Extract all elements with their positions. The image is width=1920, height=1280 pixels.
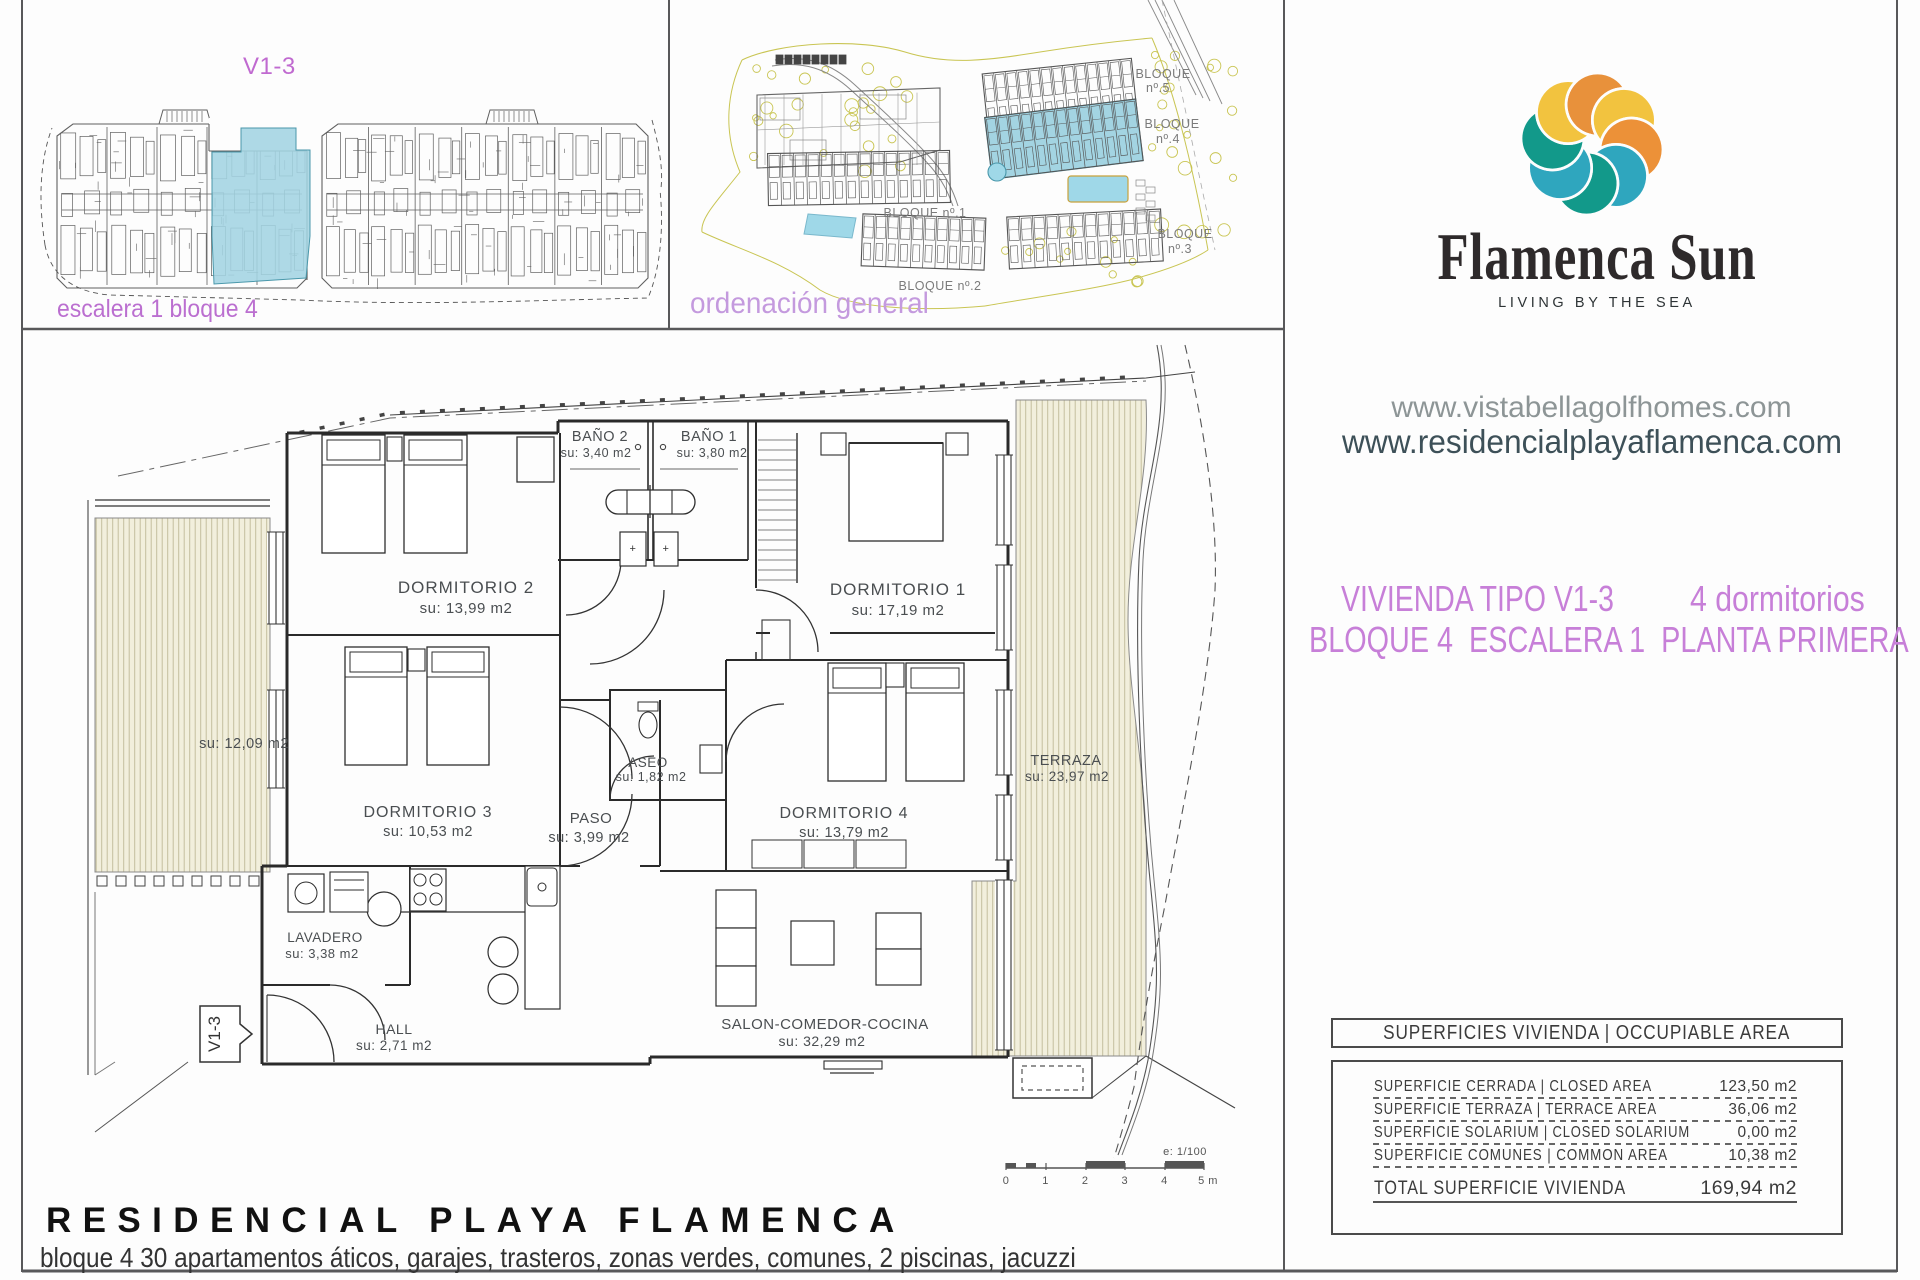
svg-text:DORMITORIO 4: DORMITORIO 4 <box>779 805 908 822</box>
svg-text:su: 10,53 m2: su: 10,53 m2 <box>383 824 473 840</box>
svg-text:BLOQUE nº.1: BLOQUE nº.1 <box>883 206 966 220</box>
svg-text:nº.5: nº.5 <box>1146 81 1170 95</box>
svg-text:DORMITORIO 3: DORMITORIO 3 <box>363 804 492 821</box>
svg-text:su: 3,80 m2: su: 3,80 m2 <box>677 446 748 460</box>
svg-text:su: 13,99 m2: su: 13,99 m2 <box>420 600 513 617</box>
svg-text:1: 1 <box>1042 1175 1049 1187</box>
svg-text:DORMITORIO 1: DORMITORIO 1 <box>830 580 966 599</box>
svg-text:HALL: HALL <box>375 1021 412 1037</box>
svg-text:PASO: PASO <box>570 810 613 827</box>
svg-text:+: + <box>630 543 637 555</box>
svg-text:su: 3,99 m2: su: 3,99 m2 <box>548 830 629 846</box>
svg-text:SALON-COMEDOR-COCINA: SALON-COMEDOR-COCINA <box>721 1016 929 1033</box>
svg-text:BLOQUE: BLOQUE <box>1144 117 1199 131</box>
svg-text:5 m: 5 m <box>1198 1175 1218 1187</box>
svg-text:su: 12,09 m2: su: 12,09 m2 <box>199 736 289 752</box>
svg-text:4: 4 <box>1161 1175 1168 1187</box>
svg-text:DORMITORIO 2: DORMITORIO 2 <box>398 578 534 597</box>
svg-text:su: 13,79 m2: su: 13,79 m2 <box>799 825 889 841</box>
svg-text:su: 23,97 m2: su: 23,97 m2 <box>1025 769 1109 784</box>
svg-text:ASEO: ASEO <box>628 755 668 770</box>
svg-text:LAVADERO: LAVADERO <box>287 930 363 945</box>
svg-text:su: 32,29 m2: su: 32,29 m2 <box>779 1033 866 1049</box>
svg-text:TERRAZA: TERRAZA <box>1030 753 1101 769</box>
svg-text:su: 1,82 m2: su: 1,82 m2 <box>616 770 687 784</box>
svg-text:+: + <box>663 543 670 555</box>
svg-text:su: 3,40 m2: su: 3,40 m2 <box>561 446 632 460</box>
svg-text:BLOQUE: BLOQUE <box>1135 67 1190 81</box>
svg-text:V1-3: V1-3 <box>205 1016 224 1052</box>
svg-text:BAÑO 2: BAÑO 2 <box>572 428 628 445</box>
svg-text:su: 3,38 m2: su: 3,38 m2 <box>285 946 358 961</box>
svg-text:0: 0 <box>1003 1175 1010 1187</box>
svg-text:2: 2 <box>1082 1175 1089 1187</box>
svg-text:su: 2,71 m2: su: 2,71 m2 <box>356 1038 432 1053</box>
svg-text:nº.4: nº.4 <box>1156 132 1180 146</box>
svg-text:BAÑO 1: BAÑO 1 <box>681 428 737 445</box>
svg-text:nº.3: nº.3 <box>1168 242 1192 256</box>
svg-text:su: 17,19 m2: su: 17,19 m2 <box>852 602 945 619</box>
svg-text:e: 1/100: e: 1/100 <box>1163 1146 1207 1158</box>
svg-text:3: 3 <box>1121 1175 1128 1187</box>
svg-text:BLOQUE: BLOQUE <box>1157 227 1212 241</box>
